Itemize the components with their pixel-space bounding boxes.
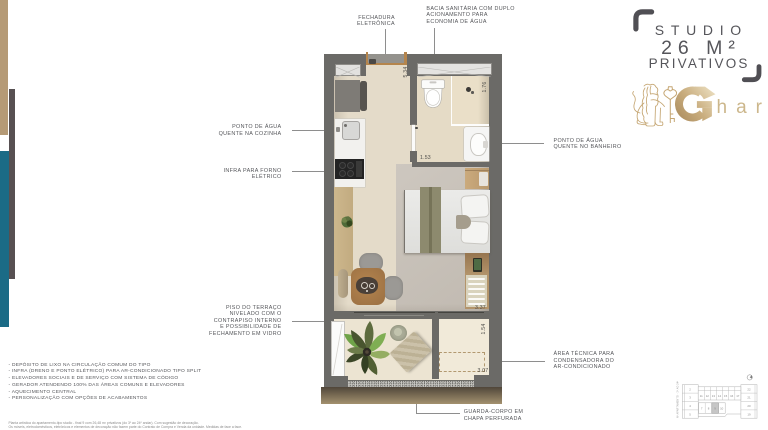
svg-text:15: 15 — [724, 394, 728, 398]
svg-text:13: 13 — [712, 394, 716, 398]
svg-text:10: 10 — [720, 407, 724, 411]
svg-text:21: 21 — [747, 396, 751, 400]
svg-text:16: 16 — [730, 394, 734, 398]
svg-text:Nº APARTAMENTO - 3º AO 24º: Nº APARTAMENTO - 3º AO 24º — [676, 381, 680, 418]
svg-text:11: 11 — [700, 394, 703, 398]
svg-text:22: 22 — [747, 387, 751, 391]
svg-text:17: 17 — [736, 394, 740, 398]
svg-text:12: 12 — [706, 394, 710, 398]
svg-text:20: 20 — [747, 404, 751, 408]
svg-text:14: 14 — [718, 394, 722, 398]
svg-text:19: 19 — [747, 413, 751, 417]
